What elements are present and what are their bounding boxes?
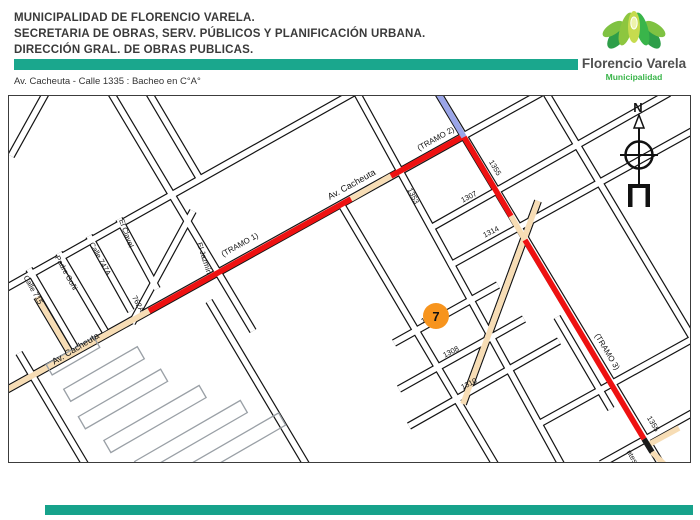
leaf-emblem-icon — [570, 2, 698, 58]
page: MUNICIPALIDAD DE FLORENCIO VARELA. SECRE… — [0, 0, 700, 520]
street-label-el-clavel: El Clavel — [117, 218, 136, 249]
road-line — [525, 240, 644, 439]
marker-7-number: 7 — [432, 309, 439, 324]
document-header: MUNICIPALIDAD DE FLORENCIO VARELA. SECRE… — [14, 10, 574, 58]
teal-divider-bar-bottom — [45, 505, 693, 515]
header-line-1: MUNICIPALIDAD DE FLORENCIO VARELA. — [14, 10, 574, 26]
teal-divider-bar-top — [14, 59, 578, 70]
legend: Referencias. TRAMO 1: Bacheo en C°A° 310… — [0, 461, 700, 505]
road-line — [209, 301, 306, 462]
street-map-svg: Av. Cacheuta Av. Cacheuta (TRAMO 1) (TRA… — [9, 96, 690, 462]
municipality-logo: Florencio Varela Municipalidad — [570, 2, 698, 84]
street-label-calle-747a: Calle 747A — [87, 241, 113, 277]
street-map: Av. Cacheuta Av. Cacheuta (TRAMO 1) (TRA… — [8, 95, 691, 463]
logo-name: Florencio Varela — [570, 56, 698, 71]
marker-7: 7 — [423, 303, 449, 329]
header-line-2: SECRETARIA DE OBRAS, SERV. PÚBLICOS Y PL… — [14, 26, 574, 42]
land-plots — [46, 337, 285, 462]
compass-n-label: N — [633, 100, 642, 115]
road-line — [11, 96, 46, 156]
logo-municipality: Municipalidad — [570, 72, 698, 82]
road-fills — [9, 96, 690, 462]
road-line — [19, 353, 85, 462]
header-line-3: DIRECCIÓN GRAL. DE OBRAS PUBLICAS. — [14, 42, 574, 58]
road-line — [149, 199, 351, 311]
map-title: Av. Cacheuta - Calle 1335 : Bacheo en C°… — [14, 76, 201, 87]
